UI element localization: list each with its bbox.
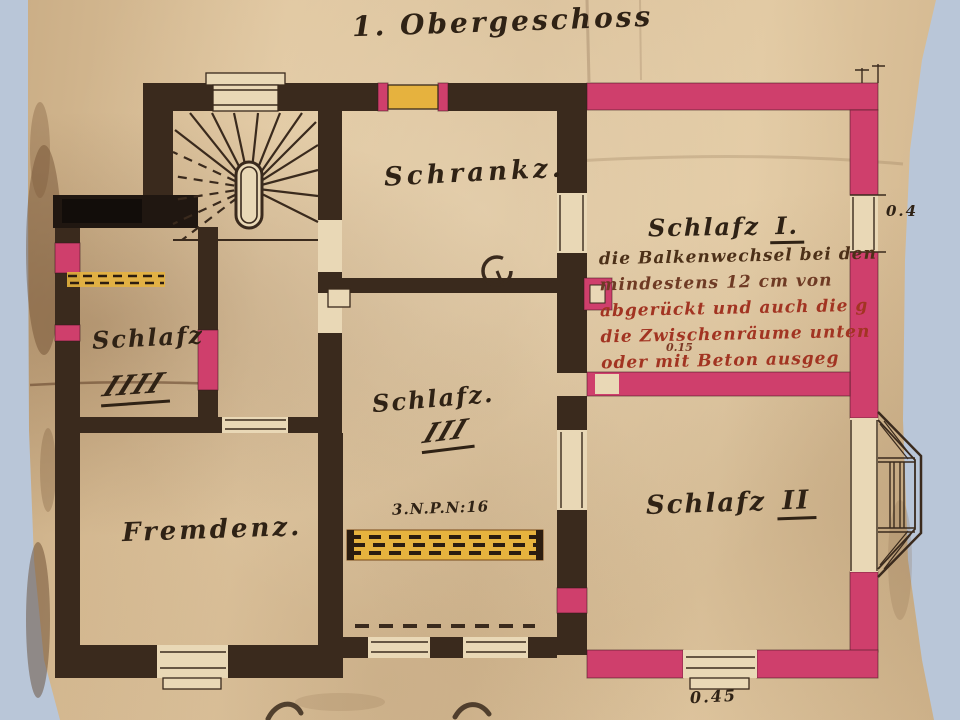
- room-label-fremdenzimmer: Fremdenz.: [122, 514, 303, 546]
- radiator-label: 3.N.P.N:16: [392, 499, 490, 517]
- room-label-schlafzimmer-1: Schlafz I.: [648, 214, 804, 247]
- room-label-schlafzimmer-2: Schlafz II: [645, 487, 816, 525]
- dimension-right: 0.4: [886, 204, 918, 219]
- room-numeral-2: II: [777, 487, 816, 520]
- room-label-schlafzimmer-4: Schlafz: [91, 323, 204, 353]
- red-ink-annotation: die Balkenwechsel bei den mindestens 12 …: [599, 240, 922, 377]
- room-numeral-3: III: [418, 416, 474, 454]
- room-numeral-4: IIII: [99, 370, 170, 408]
- annotation-dimension: 0.15: [666, 341, 693, 354]
- room-numeral-1: I.: [770, 214, 804, 245]
- dimension-bottom: 0.45: [690, 688, 738, 706]
